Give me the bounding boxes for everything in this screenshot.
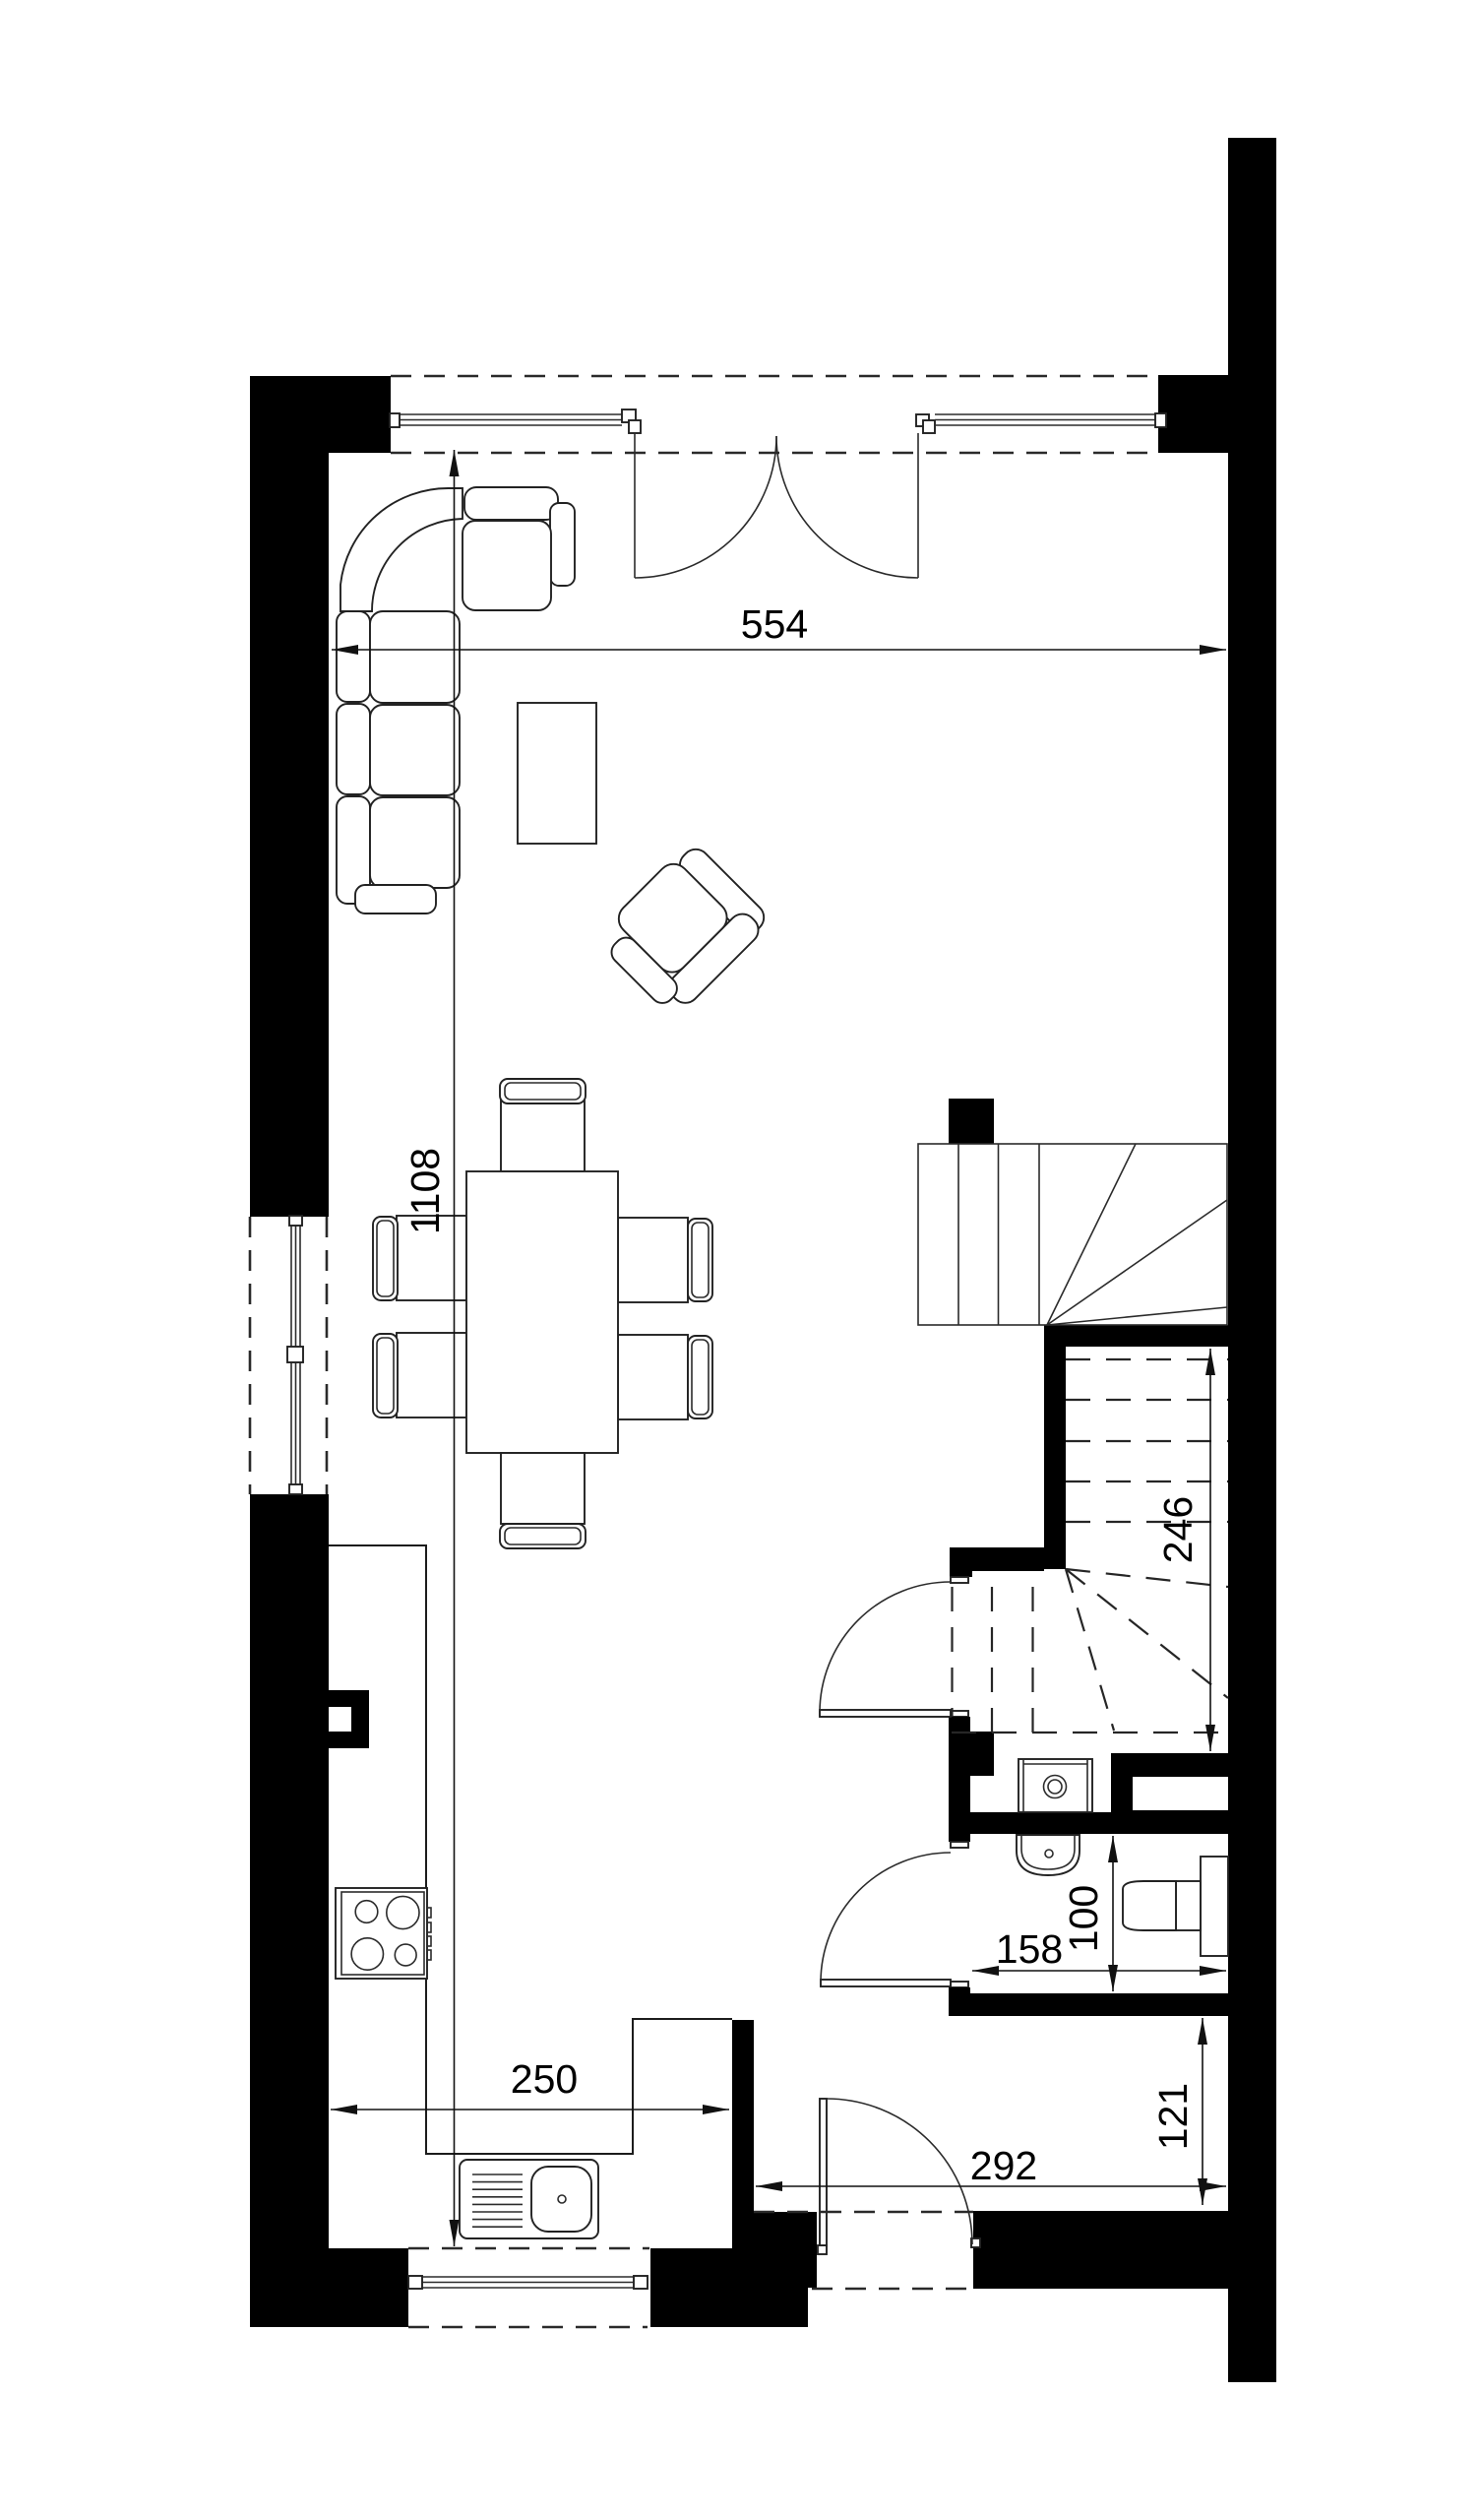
svg-text:246: 246 [1155, 1496, 1201, 1563]
svg-text:292: 292 [970, 2143, 1037, 2188]
svg-text:121: 121 [1150, 2083, 1196, 2150]
svg-text:554: 554 [741, 601, 808, 647]
svg-text:1108: 1108 [402, 1148, 448, 1234]
svg-text:158: 158 [996, 1926, 1063, 1972]
svg-text:100: 100 [1061, 1885, 1106, 1952]
svg-text:250: 250 [511, 2056, 578, 2102]
